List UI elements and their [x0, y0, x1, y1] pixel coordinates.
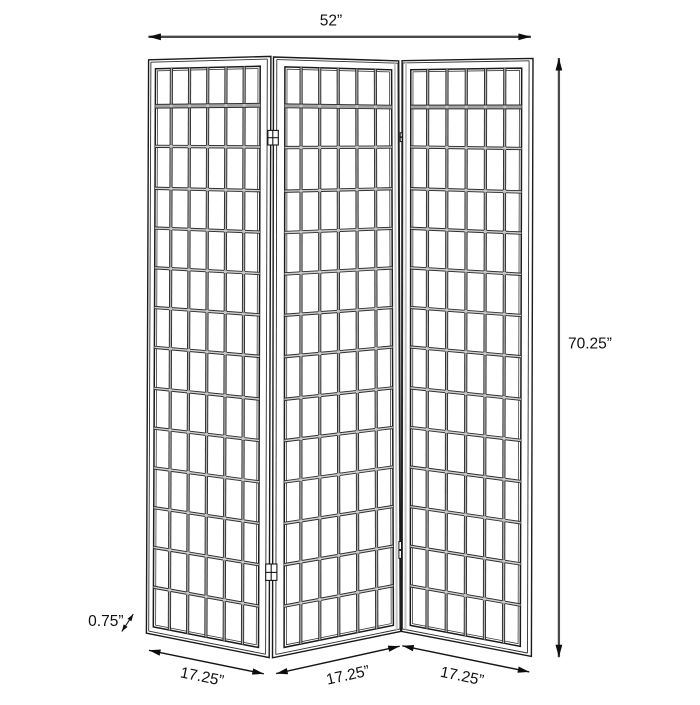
- svg-text:52”: 52”: [320, 13, 342, 30]
- svg-text:0.75”: 0.75”: [88, 613, 123, 630]
- svg-text:70.25”: 70.25”: [568, 336, 612, 353]
